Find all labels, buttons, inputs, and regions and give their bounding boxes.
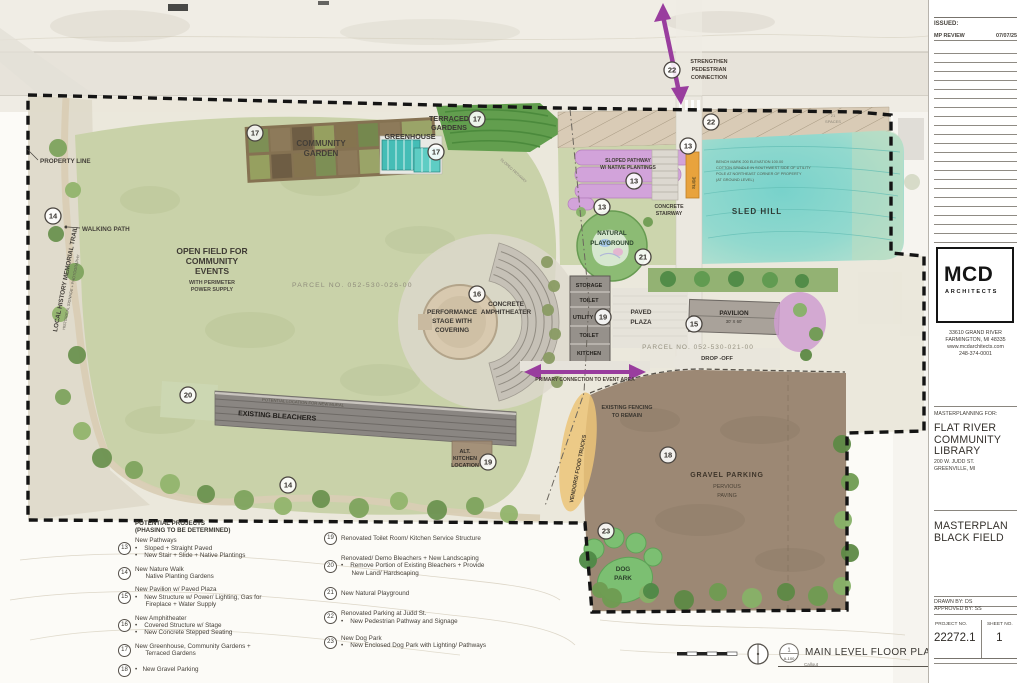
svg-text:17: 17 [432, 148, 440, 157]
concrete-stairway-label: CONCRETE [654, 204, 684, 210]
firm-address: 33610 GRAND RIVER FARMINGTON, MI 48335 w… [934, 330, 1017, 358]
room-storage-label: STORAGE [576, 283, 603, 289]
svg-text:WITH PERIMETER: WITH PERIMETER [189, 280, 235, 286]
svg-text:(AT GROUND LEVEL): (AT GROUND LEVEL) [716, 178, 755, 182]
svg-text:19: 19 [484, 458, 492, 467]
terraced-gardens-label: TERRACED [429, 114, 469, 123]
view-title: MAIN LEVEL FLOOR PLAN [805, 647, 938, 658]
legend-item-18: 18 • New Gravel Parking [118, 664, 326, 677]
title-block: ISSUED: MP REVIEW07/07/25 MCD ARCHITECTS… [928, 0, 1024, 683]
svg-text:POLE AT NORTHEAST CORNER OF PR: POLE AT NORTHEAST CORNER OF PROPERTY [716, 172, 802, 176]
svg-text:21: 21 [639, 253, 647, 262]
svg-text:COVERING: COVERING [435, 327, 469, 334]
svg-text:SPACES: SPACES [825, 119, 841, 124]
svg-text:20: 20 [184, 391, 192, 400]
project-number-block: PROJECT NO. 22272.1 SHEET NO. 1 [934, 620, 1017, 659]
project-no-label: PROJECT NO. [934, 622, 981, 627]
svg-text:POWER SUPPLY: POWER SUPPLY [191, 287, 234, 293]
alt-kitchen-label: ALT. [460, 449, 471, 455]
slide-label: SLIDE [691, 176, 696, 189]
divider [934, 663, 1017, 664]
svg-text:COTTON SPINDLE IN SOUTHWEST SI: COTTON SPINDLE IN SOUTHWEST SIDE OF UTIL… [716, 166, 811, 170]
north-arrow-icon [745, 641, 771, 667]
issued-label: ISSUED: [934, 21, 1017, 27]
svg-text:GARDENS: GARDENS [431, 123, 467, 132]
svg-text:AMPHITHEATER: AMPHITHEATER [481, 309, 532, 316]
svg-text:W/ NATIVE PLANTINGS: W/ NATIVE PLANTINGS [600, 165, 656, 171]
paved-plaza-label: PAVED [630, 309, 651, 316]
legend-item-17: 17 New Greenhouse, Community Gardens + T… [118, 643, 326, 658]
divider [934, 17, 1017, 18]
svg-text:STAGE WITH: STAGE WITH [432, 318, 472, 325]
project-no-value: 22272.1 [934, 632, 981, 644]
sheet-no-label: SHEET NO. [982, 622, 1017, 627]
svg-text:22: 22 [668, 66, 676, 75]
walking-path-label: WALKING PATH [82, 226, 130, 233]
concrete-stairway-shape [652, 150, 678, 200]
greenhouse-label: GREENHOUSE [384, 132, 435, 141]
keynote-badge: 21 [324, 587, 337, 600]
svg-text:PLAZA: PLAZA [630, 319, 652, 326]
performance-stage-label: PERFORMANCE [427, 309, 478, 316]
svg-text:PLAYGROUND: PLAYGROUND [590, 240, 634, 247]
svg-text:COMMUNITY: COMMUNITY [186, 256, 239, 266]
svg-text:17: 17 [473, 115, 481, 124]
benchmark-note: BENCH MARK 200 ELEVATION 100.00 [716, 160, 783, 164]
svg-text:EVENTS: EVENTS [195, 266, 229, 276]
parcel-026-label: PARCEL NO. 052-530-026-00 [292, 282, 413, 289]
keynote-badge: 13 [118, 542, 131, 555]
legend-item-16: 16 New Amphitheater• Covered Structure w… [118, 615, 326, 637]
svg-text:23: 23 [602, 527, 610, 536]
room-utility-label: UTILITY [573, 315, 594, 321]
legend-item-20: 20 Renovated/ Demo Bleachers + New Lands… [324, 555, 570, 577]
sheet-title: MASTERPLAN BLACK FIELD [934, 521, 1017, 545]
view-note: Callout [804, 662, 818, 667]
view-reference-bubble: 1 A-100 [778, 642, 800, 664]
room-toilet1-label: TOILET [579, 298, 599, 304]
masterplanning-for-label: MASTERPLANNING FOR: [934, 411, 1017, 417]
pavilion-label: PAVILION [719, 310, 749, 317]
svg-text:1: 1 [787, 647, 790, 653]
community-garden-label: COMMUNITY [296, 139, 346, 148]
legend-header: POTENTIAL PROJECTS (PHASING TO BE DETERM… [135, 520, 326, 534]
gravel-parking-label: GRAVEL PARKING [690, 472, 763, 479]
pavilion-size-label: 30' X 60' [726, 319, 743, 324]
parcel-021-label: PARCEL NO. 052-530-021-00 [642, 344, 754, 351]
svg-text:STAIRWAY: STAIRWAY [656, 211, 683, 217]
svg-text:KITCHEN: KITCHEN [453, 456, 477, 462]
svg-text:17: 17 [251, 129, 259, 138]
svg-text:PAVING: PAVING [717, 493, 737, 499]
legend-item-21: 21 New Natural Playground [324, 587, 570, 600]
keynote-badge: 18 [118, 664, 131, 677]
svg-text:GARDEN: GARDEN [304, 149, 339, 158]
client-name: FLAT RIVER COMMUNITY LIBRARY [934, 423, 1017, 458]
revision-blank-lines [934, 45, 1017, 243]
keynote-badge: 19 [324, 532, 337, 545]
existing-fencing-label: EXISTING FENCING [602, 405, 653, 411]
dog-park-label: DOG [616, 566, 631, 573]
svg-text:13: 13 [598, 203, 606, 212]
divider [934, 510, 1017, 511]
mcd-architects-logo: MCD ARCHITECTS [936, 247, 1014, 323]
svg-text:16: 16 [473, 290, 481, 299]
svg-text:CONNECTION: CONNECTION [691, 75, 727, 81]
open-field-label: OPEN FIELD FOR [176, 246, 247, 256]
concrete-amphitheater-label: CONCRETE [488, 301, 525, 308]
room-toilet2-label: TOILET [579, 333, 599, 339]
svg-text:PERVIOUS: PERVIOUS [713, 484, 741, 490]
sled-hill-label: SLED HILL [732, 207, 782, 216]
svg-text:LOCATION: LOCATION [451, 463, 479, 469]
svg-text:A-100: A-100 [784, 656, 795, 661]
svg-text:19: 19 [599, 313, 607, 322]
property-line-label: PROPERTY LINE [40, 158, 91, 165]
svg-text:PEDESTRIAN: PEDESTRIAN [692, 67, 727, 73]
approved-by: APPROVED BY: SS [934, 606, 1017, 615]
legend-item-19: 19 Renovated Toilet Room/ Kitchen Servic… [324, 532, 570, 545]
pavilion-building [688, 299, 779, 334]
sled-hill-area [700, 130, 904, 264]
room-kitchen-label: KITCHEN [577, 351, 601, 357]
primary-connection-label: PRIMARY CONNECTION TO EVENT AREA [535, 377, 635, 383]
svg-text:14: 14 [49, 212, 58, 221]
keynote-badge: 15 [118, 591, 131, 604]
graphic-scale-bar [676, 648, 738, 660]
sheet-no-value: 1 [982, 632, 1017, 644]
drop-off-label: DROP -OFF [701, 356, 733, 362]
legend-item-22: 22 Renovated Parking at Judd St.• New Pe… [324, 610, 570, 625]
slide-shape [686, 152, 699, 198]
legend-item-14: 14 New Nature Walk Native Planting Garde… [118, 566, 326, 581]
keynote-badge: 17 [118, 644, 131, 657]
keynote-badge: 22 [324, 611, 337, 624]
spaces-21-label: 21 [831, 113, 836, 118]
legend-item-15: 15 New Pavilion w/ Paved Plaza• New Stru… [118, 586, 326, 608]
svg-text:13: 13 [684, 142, 692, 151]
legend-item-23: 23 New Dog Park• New Enclosed Dog Park w… [324, 635, 570, 650]
svg-text:14: 14 [284, 481, 293, 490]
keynote-badge: 16 [118, 619, 131, 632]
divider [934, 406, 1017, 407]
legend-item-13: 13 New Pathways• Sloped + Straight Paved… [118, 537, 326, 559]
svg-text:18: 18 [664, 451, 672, 460]
keynote-badge: 20 [324, 560, 337, 573]
svg-text:22: 22 [707, 118, 715, 127]
keynote-badge: 14 [118, 567, 131, 580]
view-title-bar: 1 A-100 MAIN LEVEL FLOOR PLAN Callout [676, 641, 944, 667]
revision-row: MP REVIEW07/07/25 [934, 33, 1017, 41]
svg-text:13: 13 [630, 177, 638, 186]
flower-bed [774, 292, 826, 352]
svg-text:PARK: PARK [614, 575, 632, 582]
client-address: 200 W. JUDD ST. GREENVILLE, MI [934, 459, 1017, 472]
keynote-badge: 23 [324, 636, 337, 649]
sloped-pathway-label: SLOPED PATHWAY [605, 158, 651, 164]
svg-text:15: 15 [690, 320, 698, 329]
svg-text:TO REMAIN: TO REMAIN [612, 413, 642, 419]
natural-playground-label: NATURAL [597, 230, 627, 237]
paved-plaza-area [612, 288, 688, 348]
strengthen-label: STRENGTHEN [690, 59, 727, 65]
